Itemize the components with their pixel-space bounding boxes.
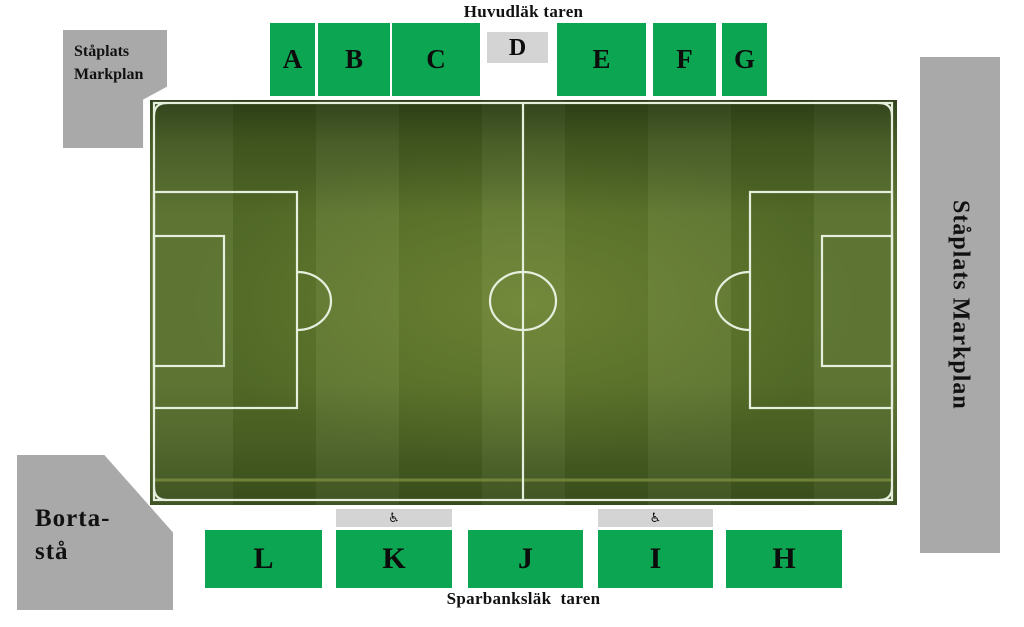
standing-area-markplan-right[interactable]: Ståplats Markplan [920,57,1000,553]
section-j[interactable]: J [468,530,583,588]
section-h[interactable]: H [726,530,842,588]
section-b[interactable]: B [318,23,390,96]
stadium-map: Huvudläk taren A B C D E F G Ståplats Ma… [0,0,1024,627]
standing-area-label-line2: Markplan [74,63,167,86]
accessible-seating-strip-k[interactable]: ♿ [336,509,452,527]
pitch [150,100,897,505]
sparbank-stand-label: Sparbanksläk taren [150,589,897,609]
standing-area-label-line1: Ståplats [74,40,167,63]
standing-area-right-label: Ståplats Markplan [947,200,974,410]
section-i[interactable]: I [598,530,713,588]
away-standing-label-line2: stå [35,536,173,569]
section-g[interactable]: G [722,23,767,96]
section-l[interactable]: L [205,530,322,588]
main-stand-label: Huvudläk taren [150,2,897,22]
wheelchair-icon: ♿ [650,512,662,525]
accessible-seating-strip-i[interactable]: ♿ [598,509,713,527]
pitch-markings [150,100,897,505]
away-standing-label-line1: Borta- [35,503,173,536]
section-a[interactable]: A [270,23,315,96]
section-d[interactable]: D [487,32,548,63]
section-f[interactable]: F [653,23,716,96]
section-c[interactable]: C [392,23,480,96]
wheelchair-icon: ♿ [388,512,400,525]
section-k[interactable]: K [336,530,452,588]
section-e[interactable]: E [557,23,646,96]
